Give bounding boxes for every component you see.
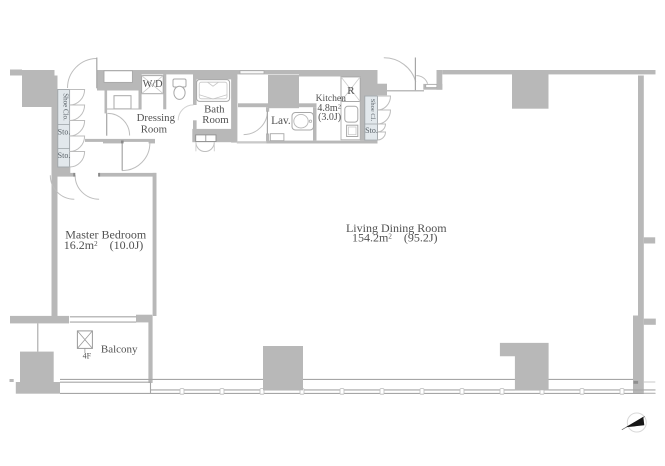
svg-text:Sto.: Sto. bbox=[365, 126, 378, 135]
svg-text:Dressing: Dressing bbox=[137, 112, 176, 124]
svg-text:16.2m2 (10.0J): 16.2m2 (10.0J) bbox=[64, 238, 144, 252]
svg-text:Shoe Clo.: Shoe Clo. bbox=[62, 93, 70, 121]
svg-text:Shoe Cl.: Shoe Cl. bbox=[369, 99, 376, 122]
svg-text:R: R bbox=[347, 85, 355, 97]
svg-text:Balcony: Balcony bbox=[101, 344, 138, 356]
svg-text:Sto.: Sto. bbox=[58, 151, 71, 160]
svg-text:Lav.: Lav. bbox=[271, 115, 291, 127]
svg-text:(3.0J): (3.0J) bbox=[318, 112, 341, 123]
svg-text:Sto.: Sto. bbox=[58, 127, 71, 136]
svg-text:Room: Room bbox=[141, 124, 168, 136]
svg-text:Room: Room bbox=[202, 114, 229, 126]
svg-text:W/D: W/D bbox=[143, 79, 164, 90]
svg-text:154.2m2 (95.2J): 154.2m2 (95.2J) bbox=[352, 230, 438, 244]
svg-text:4F: 4F bbox=[83, 351, 92, 360]
